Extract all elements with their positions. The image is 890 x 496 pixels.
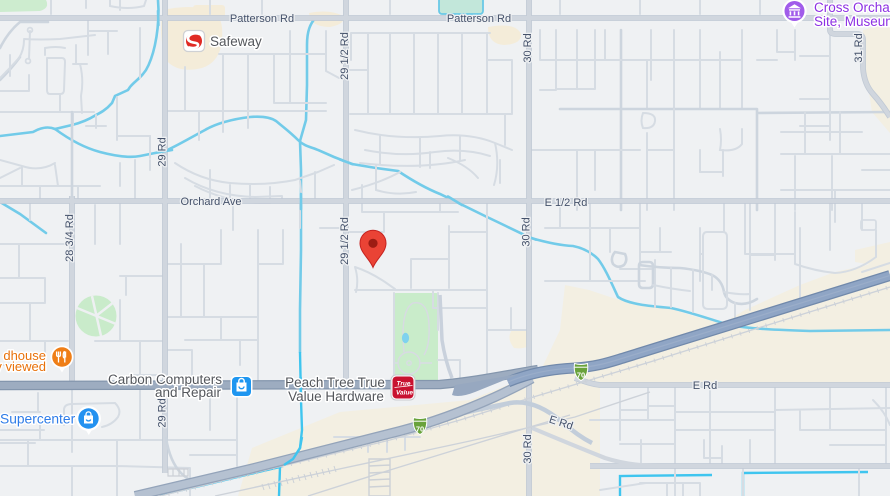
svg-text:30 Rd: 30 Rd — [521, 217, 533, 246]
svg-text:29 1/2 Rd: 29 1/2 Rd — [339, 32, 351, 80]
svg-text:31 Rd: 31 Rd — [853, 33, 865, 62]
svg-text:70: 70 — [577, 371, 585, 380]
svg-text:Value Hardware: Value Hardware — [288, 389, 384, 404]
svg-text:29 Rd: 29 Rd — [157, 398, 169, 427]
svg-text:ly viewed: ly viewed — [0, 359, 46, 374]
svg-text:Patterson Rd: Patterson Rd — [447, 13, 511, 25]
svg-text:Supercenter: Supercenter — [0, 412, 76, 427]
svg-text:E Rd: E Rd — [693, 380, 717, 392]
svg-text:Value: Value — [396, 390, 413, 397]
svg-text:28 3/4 Rd: 28 3/4 Rd — [64, 214, 76, 262]
svg-text:Safeway: Safeway — [210, 34, 262, 49]
svg-text:30 Rd: 30 Rd — [522, 33, 534, 62]
svg-text:70: 70 — [416, 425, 424, 434]
svg-text:Site, Museum: Site, Museum — [814, 14, 890, 29]
svg-text:and Repair: and Repair — [155, 385, 222, 400]
svg-text:Patterson Rd: Patterson Rd — [230, 13, 294, 25]
svg-text:E 1/2 Rd: E 1/2 Rd — [545, 197, 588, 209]
svg-text:30 Rd: 30 Rd — [522, 434, 534, 463]
svg-text:29 1/2 Rd: 29 1/2 Rd — [339, 217, 351, 265]
svg-text:Orchard Ave: Orchard Ave — [181, 196, 242, 208]
svg-text:Peach Tree True: Peach Tree True — [285, 375, 385, 390]
svg-text:29 Rd: 29 Rd — [157, 137, 169, 166]
svg-text:Cross Orchar: Cross Orchar — [814, 0, 890, 15]
